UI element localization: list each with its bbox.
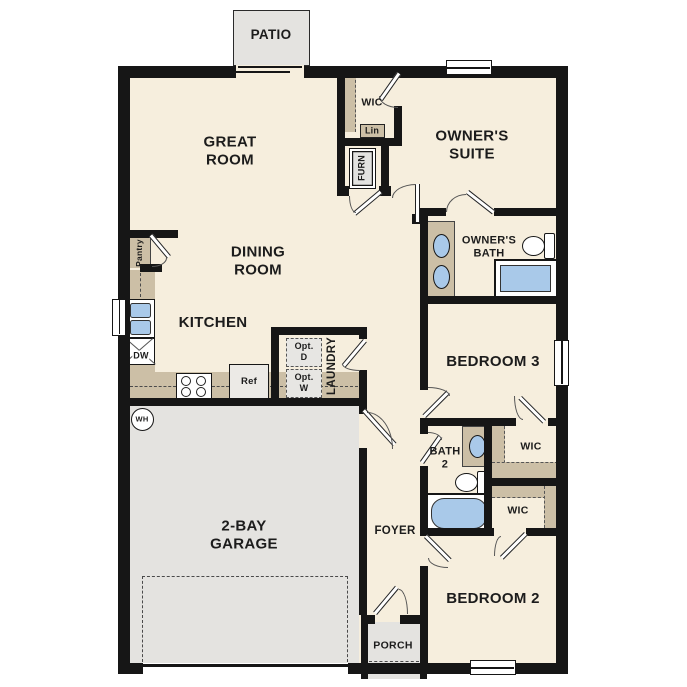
sink-basin: [130, 303, 151, 318]
wall-laundry-top: [271, 327, 367, 335]
toilet-bowl: [522, 236, 545, 256]
window-mullion: [471, 667, 514, 669]
wall-porch-left: [361, 615, 368, 679]
garage-door-dash: [142, 576, 348, 577]
wall-greatroom-right: [337, 70, 345, 190]
porch-edge-dash: [369, 661, 419, 662]
sink-basin: [130, 320, 151, 335]
wall-bath2-stub: [420, 426, 428, 434]
stove-burner: [196, 376, 206, 386]
room-label-porch: PORCH: [373, 640, 412, 653]
counter-dash-line: [212, 386, 229, 387]
window-bedroom3: [554, 340, 569, 386]
wall-entry-stub: [361, 615, 375, 624]
wall-bed2-top: [420, 528, 494, 536]
room-label-patio: PATIO: [251, 27, 292, 43]
appliance-label-ref: Ref: [241, 376, 257, 388]
wall-laundry-right: [359, 327, 367, 339]
wall-bed3-bottom: [548, 418, 567, 426]
stove-burner: [181, 376, 191, 386]
toilet-tank: [544, 233, 555, 259]
wic-shelf: [345, 70, 356, 132]
room-label-laundry: LAUNDRY: [325, 337, 339, 395]
sliding-door: [236, 65, 304, 79]
stove-burner: [181, 387, 191, 397]
vanity-sink: [433, 234, 450, 258]
wall-wic-suite: [394, 106, 402, 146]
kitchen-counter-corner: [127, 365, 155, 399]
vanity-sink: [433, 265, 450, 289]
wall-bath2-left: [420, 466, 428, 536]
wall-bath-top: [420, 208, 446, 216]
wall-laundry-right: [359, 370, 367, 406]
wall-bed3-bottom: [420, 418, 516, 426]
wall-entry-stub: [400, 615, 427, 624]
toilet-bowl: [455, 473, 478, 492]
wall-wic-bottom: [337, 138, 402, 146]
window-bedroom2: [470, 660, 516, 675]
room-label-wic-owners: WIC: [361, 97, 382, 110]
wall-porch-right: [420, 615, 427, 679]
kitchen-counter-upper: [128, 270, 155, 299]
counter-dash-line: [130, 386, 176, 387]
room-label-wic-bed3: WIC: [520, 441, 541, 454]
room-label-foyer: FOYER: [374, 524, 415, 538]
appliance-label-wh: WH: [136, 414, 149, 423]
floor-plan: PATIO GREAT ROOM WIC Lin FURN OWNER'S SU…: [0, 0, 687, 687]
room-label-bath-2: BATH 2: [430, 446, 461, 473]
wall-bath-top: [494, 208, 567, 216]
counter-dash-line: [140, 273, 141, 297]
room-label-owners-suite: OWNER'S SUITE: [435, 128, 508, 165]
wic-shelf: [492, 462, 558, 478]
sliding-door-panel: [238, 66, 302, 68]
window-mullion: [119, 300, 121, 334]
room-label-linen: Lin: [365, 126, 379, 137]
range-stove: [176, 373, 212, 399]
appliance-label-opt-w: Opt. W: [295, 372, 314, 394]
garage-door-dash: [142, 576, 143, 662]
garage-door-dash: [347, 576, 348, 662]
wall-exterior-left: [118, 66, 130, 674]
room-label-garage: 2-BAY GARAGE: [210, 518, 278, 555]
room-label-pantry: Pantry: [134, 239, 144, 267]
wall-bath-bed3: [420, 296, 567, 304]
wall-wic-divider: [484, 478, 567, 486]
window-owners-suite: [446, 60, 492, 75]
wall-bed3-left: [420, 304, 428, 390]
window-mullion: [561, 341, 563, 384]
wall-kitchen-garage: [118, 398, 367, 406]
appliance-label-dw: DW: [132, 351, 149, 362]
wall-garage-right: [359, 448, 367, 615]
wall-bed2-top: [526, 528, 567, 536]
garage-door: [143, 663, 348, 674]
window-kitchen: [112, 299, 126, 336]
wall-furn-stub: [337, 186, 349, 196]
window-mullion: [447, 67, 490, 69]
room-label-bedroom-3: BEDROOM 3: [446, 353, 540, 371]
sliding-door-panel: [236, 71, 290, 73]
wall-laundry-left: [271, 327, 279, 406]
garage-door-panel: [143, 664, 348, 667]
wic-shelf: [492, 486, 546, 498]
appliance-label-opt-d: Opt. D: [295, 341, 314, 363]
room-label-bedroom-2: BEDROOM 2: [446, 590, 540, 608]
room-label-owners-bath: OWNER'S BATH: [462, 235, 516, 262]
room-label-wic-bed2: WIC: [507, 505, 528, 518]
tub-basin: [431, 498, 487, 529]
shower-pan: [500, 265, 551, 292]
room-label-dining-room: DINING ROOM: [231, 244, 285, 281]
wall-bath-left: [420, 214, 428, 304]
room-label-great-room: GREAT ROOM: [204, 134, 257, 171]
room-label-furnace: FURN: [357, 155, 368, 181]
stove-burner: [196, 387, 206, 397]
room-label-kitchen: KITCHEN: [179, 314, 248, 332]
